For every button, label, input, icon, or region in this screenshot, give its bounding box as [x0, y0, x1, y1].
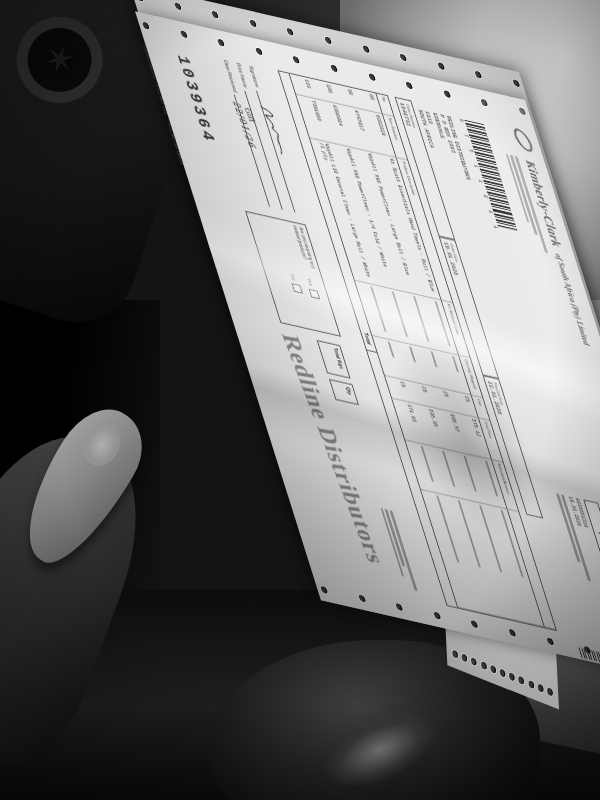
- circular-emblem-icon: ✶: [5, 6, 113, 114]
- thumb-nail: [77, 418, 127, 472]
- yes-label: Yes: [306, 278, 314, 287]
- sprocket-hole: [518, 675, 524, 684]
- qty-label: Qty: [329, 379, 359, 405]
- sprocket-hole: [362, 45, 370, 53]
- star-icon: ✶: [37, 36, 81, 84]
- no-checkbox: [292, 284, 303, 295]
- no-label: No: [290, 274, 298, 281]
- sprocket-hole: [324, 36, 332, 44]
- sprocket-hole: [500, 668, 506, 677]
- sprocket-hole: [512, 79, 520, 87]
- total-kgs-label: Total Kgs: [317, 340, 351, 379]
- sprocket-hole: [509, 672, 515, 681]
- proof-of-delivery-box: Proof of Delivery 8035551318 19.01.2026: [554, 493, 600, 626]
- sprocket-hole: [490, 664, 496, 673]
- sprocket-hole: [528, 679, 534, 688]
- sprocket-hole: [481, 660, 487, 669]
- yes-checkbox-row: Yes: [305, 277, 320, 299]
- print-name-label: Print Name:: [235, 62, 249, 89]
- no-checkbox-row: No: [288, 274, 303, 296]
- sprocket-hole: [173, 2, 181, 10]
- sprocket-hole: [286, 27, 294, 35]
- sprocket-hole: [437, 62, 445, 70]
- sprocket-hole: [452, 649, 458, 658]
- photo-scene: ✶ Kimberly-Clark of South Africa (Pty) L…: [0, 0, 600, 800]
- sprocket-hole: [471, 657, 477, 666]
- sprocket-hole: [249, 19, 257, 27]
- signature-label: Signature:: [248, 65, 261, 89]
- document-number: 1039364: [173, 53, 219, 145]
- sprocket-hole: [399, 53, 407, 61]
- yes-checkbox: [309, 289, 320, 300]
- sprocket-hole: [537, 683, 543, 692]
- sprocket-hole: [462, 653, 468, 662]
- sprocket-hole: [474, 70, 482, 78]
- treated-products-question: Are you returning any treated products?: [250, 216, 318, 277]
- sprocket-hole: [136, 0, 144, 1]
- sprocket-hole: [211, 10, 219, 18]
- sprocket-hole: [547, 687, 553, 696]
- kimberly-clark-logo-icon: [511, 128, 537, 152]
